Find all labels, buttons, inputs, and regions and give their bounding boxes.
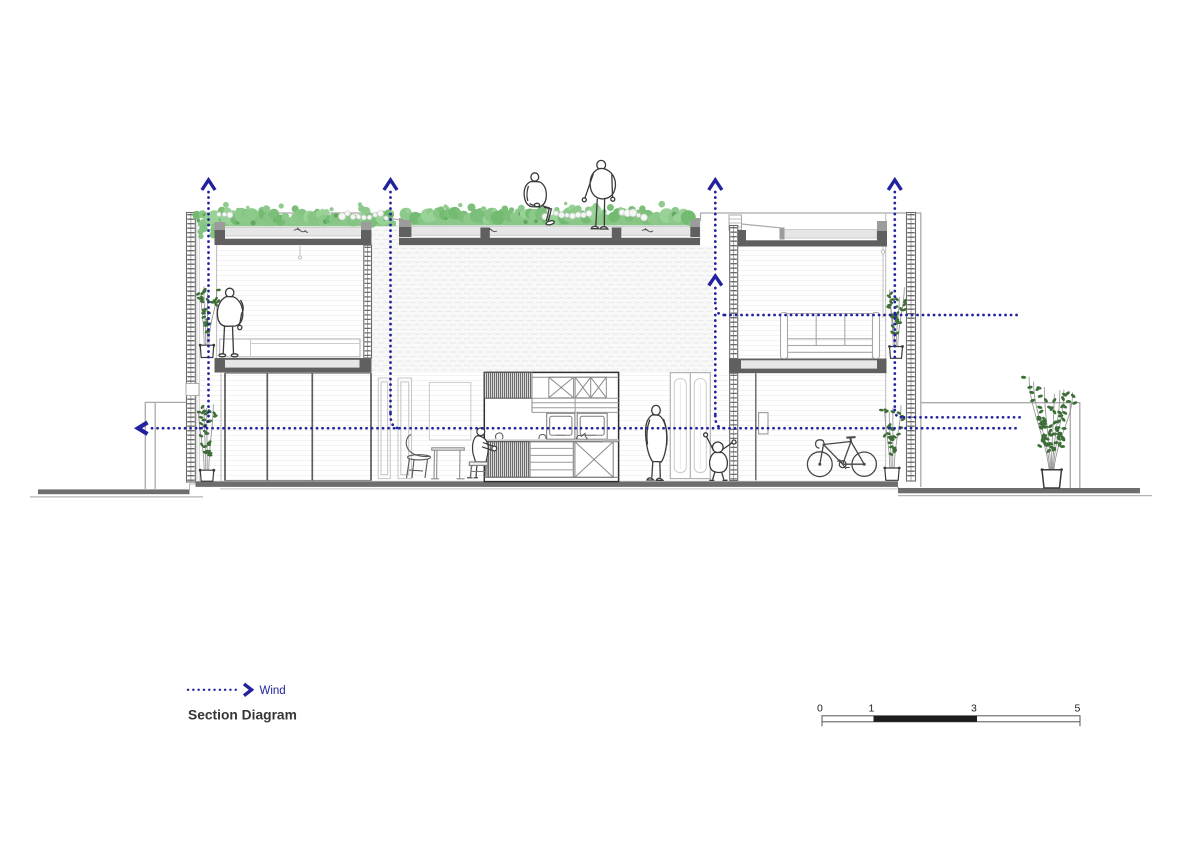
svg-text:5: 5	[1075, 703, 1081, 715]
svg-text:Wind: Wind	[260, 685, 286, 697]
svg-text:3: 3	[971, 703, 977, 715]
svg-text:0: 0	[817, 703, 823, 715]
svg-text:Section Diagram: Section Diagram	[188, 708, 297, 723]
svg-text:1: 1	[869, 703, 875, 715]
